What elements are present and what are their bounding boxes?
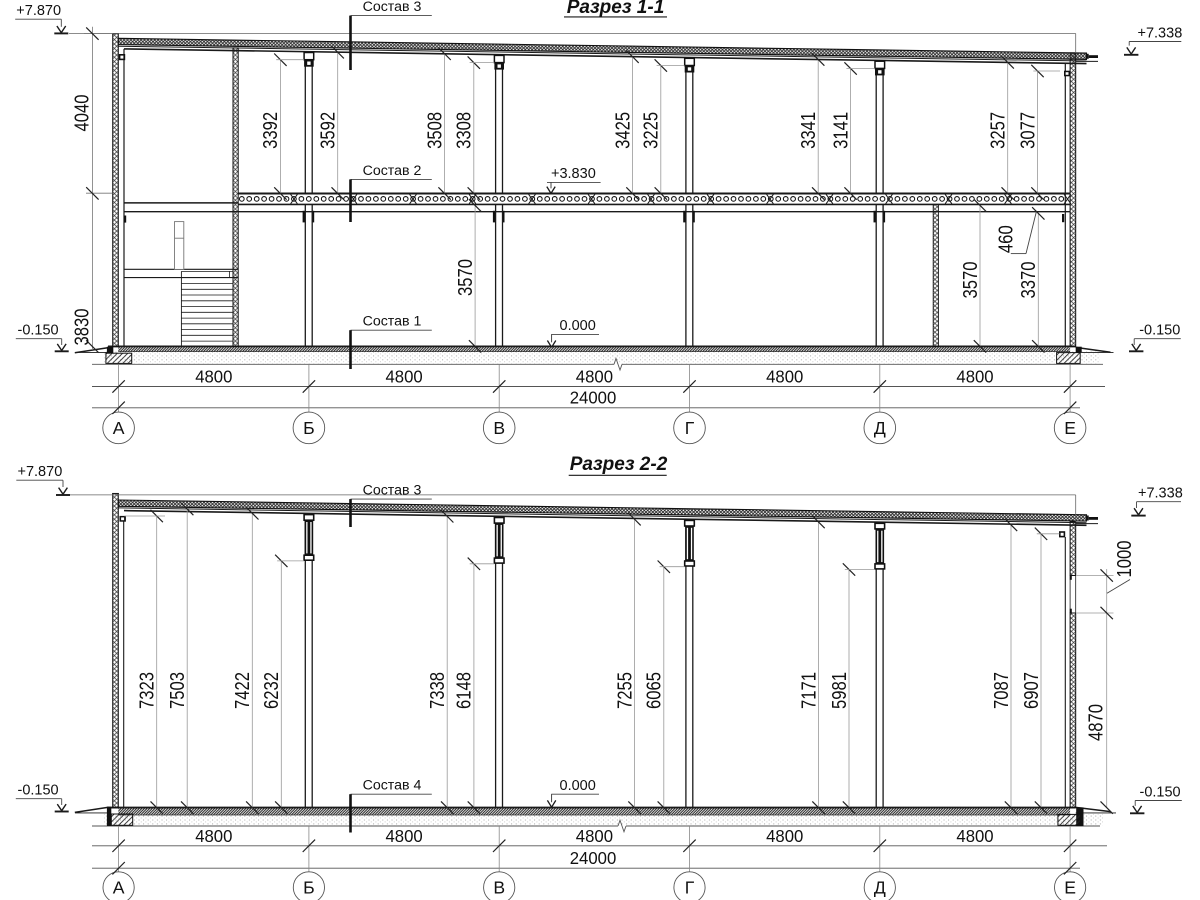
svg-text:В: В: [493, 877, 505, 897]
svg-text:4800: 4800: [766, 826, 803, 846]
svg-text:7503: 7503: [167, 672, 189, 709]
svg-text:-0.150: -0.150: [18, 323, 59, 339]
svg-text:4800: 4800: [576, 366, 613, 386]
svg-text:3141: 3141: [830, 112, 852, 149]
svg-text:+7.870: +7.870: [16, 3, 61, 19]
svg-text:+7.338: +7.338: [1138, 25, 1183, 41]
svg-text:0.000: 0.000: [560, 778, 596, 794]
svg-text:24000: 24000: [570, 848, 617, 868]
svg-text:4800: 4800: [766, 366, 803, 386]
svg-text:7171: 7171: [798, 672, 820, 709]
svg-text:6232: 6232: [261, 672, 283, 709]
svg-text:Д: Д: [874, 418, 886, 438]
svg-text:7422: 7422: [232, 672, 254, 709]
svg-text:Состав 2: Состав 2: [363, 163, 422, 179]
svg-text:Состав 3: Состав 3: [363, 483, 422, 499]
svg-text:4800: 4800: [956, 366, 993, 386]
svg-text:4800: 4800: [386, 366, 423, 386]
svg-text:А: А: [113, 877, 125, 897]
svg-text:1000: 1000: [1114, 541, 1136, 578]
svg-text:6148: 6148: [454, 672, 476, 709]
svg-text:3425: 3425: [612, 112, 634, 149]
svg-text:4800: 4800: [195, 366, 232, 386]
svg-text:460: 460: [996, 225, 1018, 253]
svg-text:0.000: 0.000: [560, 318, 596, 334]
svg-text:3570: 3570: [960, 262, 982, 299]
svg-text:24000: 24000: [570, 388, 617, 408]
svg-text:Е: Е: [1064, 418, 1076, 438]
svg-text:4870: 4870: [1086, 704, 1108, 741]
svg-text:4800: 4800: [386, 826, 423, 846]
svg-text:Разрез 2-2: Разрез 2-2: [570, 454, 668, 475]
svg-text:Б: Б: [303, 418, 315, 438]
svg-text:-0.150: -0.150: [18, 783, 59, 799]
svg-text:3077: 3077: [1017, 112, 1039, 149]
svg-text:-0.150: -0.150: [1139, 323, 1180, 339]
svg-text:+7.870: +7.870: [18, 464, 63, 480]
svg-text:А: А: [113, 418, 125, 438]
svg-text:3508: 3508: [424, 112, 446, 149]
svg-text:7338: 7338: [427, 672, 449, 709]
svg-text:5981: 5981: [829, 672, 851, 709]
svg-text:3370: 3370: [1018, 262, 1040, 299]
svg-text:+3.830: +3.830: [551, 166, 596, 182]
svg-text:Состав 3: Состав 3: [363, 0, 422, 15]
svg-text:3392: 3392: [260, 112, 282, 149]
svg-text:Состав 4: Состав 4: [363, 778, 422, 794]
svg-text:Е: Е: [1064, 877, 1076, 897]
svg-text:В: В: [493, 418, 505, 438]
svg-text:Г: Г: [685, 877, 695, 897]
svg-text:Состав 1: Состав 1: [363, 314, 422, 330]
svg-text:3308: 3308: [454, 112, 476, 149]
svg-text:Разрез 1-1: Разрез 1-1: [567, 0, 665, 18]
svg-text:4800: 4800: [576, 826, 613, 846]
svg-text:+7.338: +7.338: [1138, 486, 1183, 502]
svg-text:4800: 4800: [956, 826, 993, 846]
svg-text:7255: 7255: [614, 672, 636, 709]
svg-text:7323: 7323: [137, 672, 159, 709]
svg-text:4040: 4040: [71, 95, 93, 132]
svg-text:-0.150: -0.150: [1140, 784, 1181, 800]
svg-text:7087: 7087: [991, 672, 1013, 709]
svg-text:6065: 6065: [644, 672, 666, 709]
svg-text:3570: 3570: [455, 259, 477, 296]
svg-text:4800: 4800: [195, 826, 232, 846]
svg-text:3225: 3225: [641, 112, 663, 149]
svg-text:3257: 3257: [988, 112, 1010, 149]
svg-text:3592: 3592: [318, 112, 340, 149]
svg-text:3341: 3341: [798, 112, 820, 149]
svg-text:Д: Д: [874, 877, 886, 897]
svg-text:3830: 3830: [71, 309, 93, 346]
svg-text:Б: Б: [303, 877, 315, 897]
svg-text:Г: Г: [685, 418, 695, 438]
svg-text:6907: 6907: [1021, 672, 1043, 709]
